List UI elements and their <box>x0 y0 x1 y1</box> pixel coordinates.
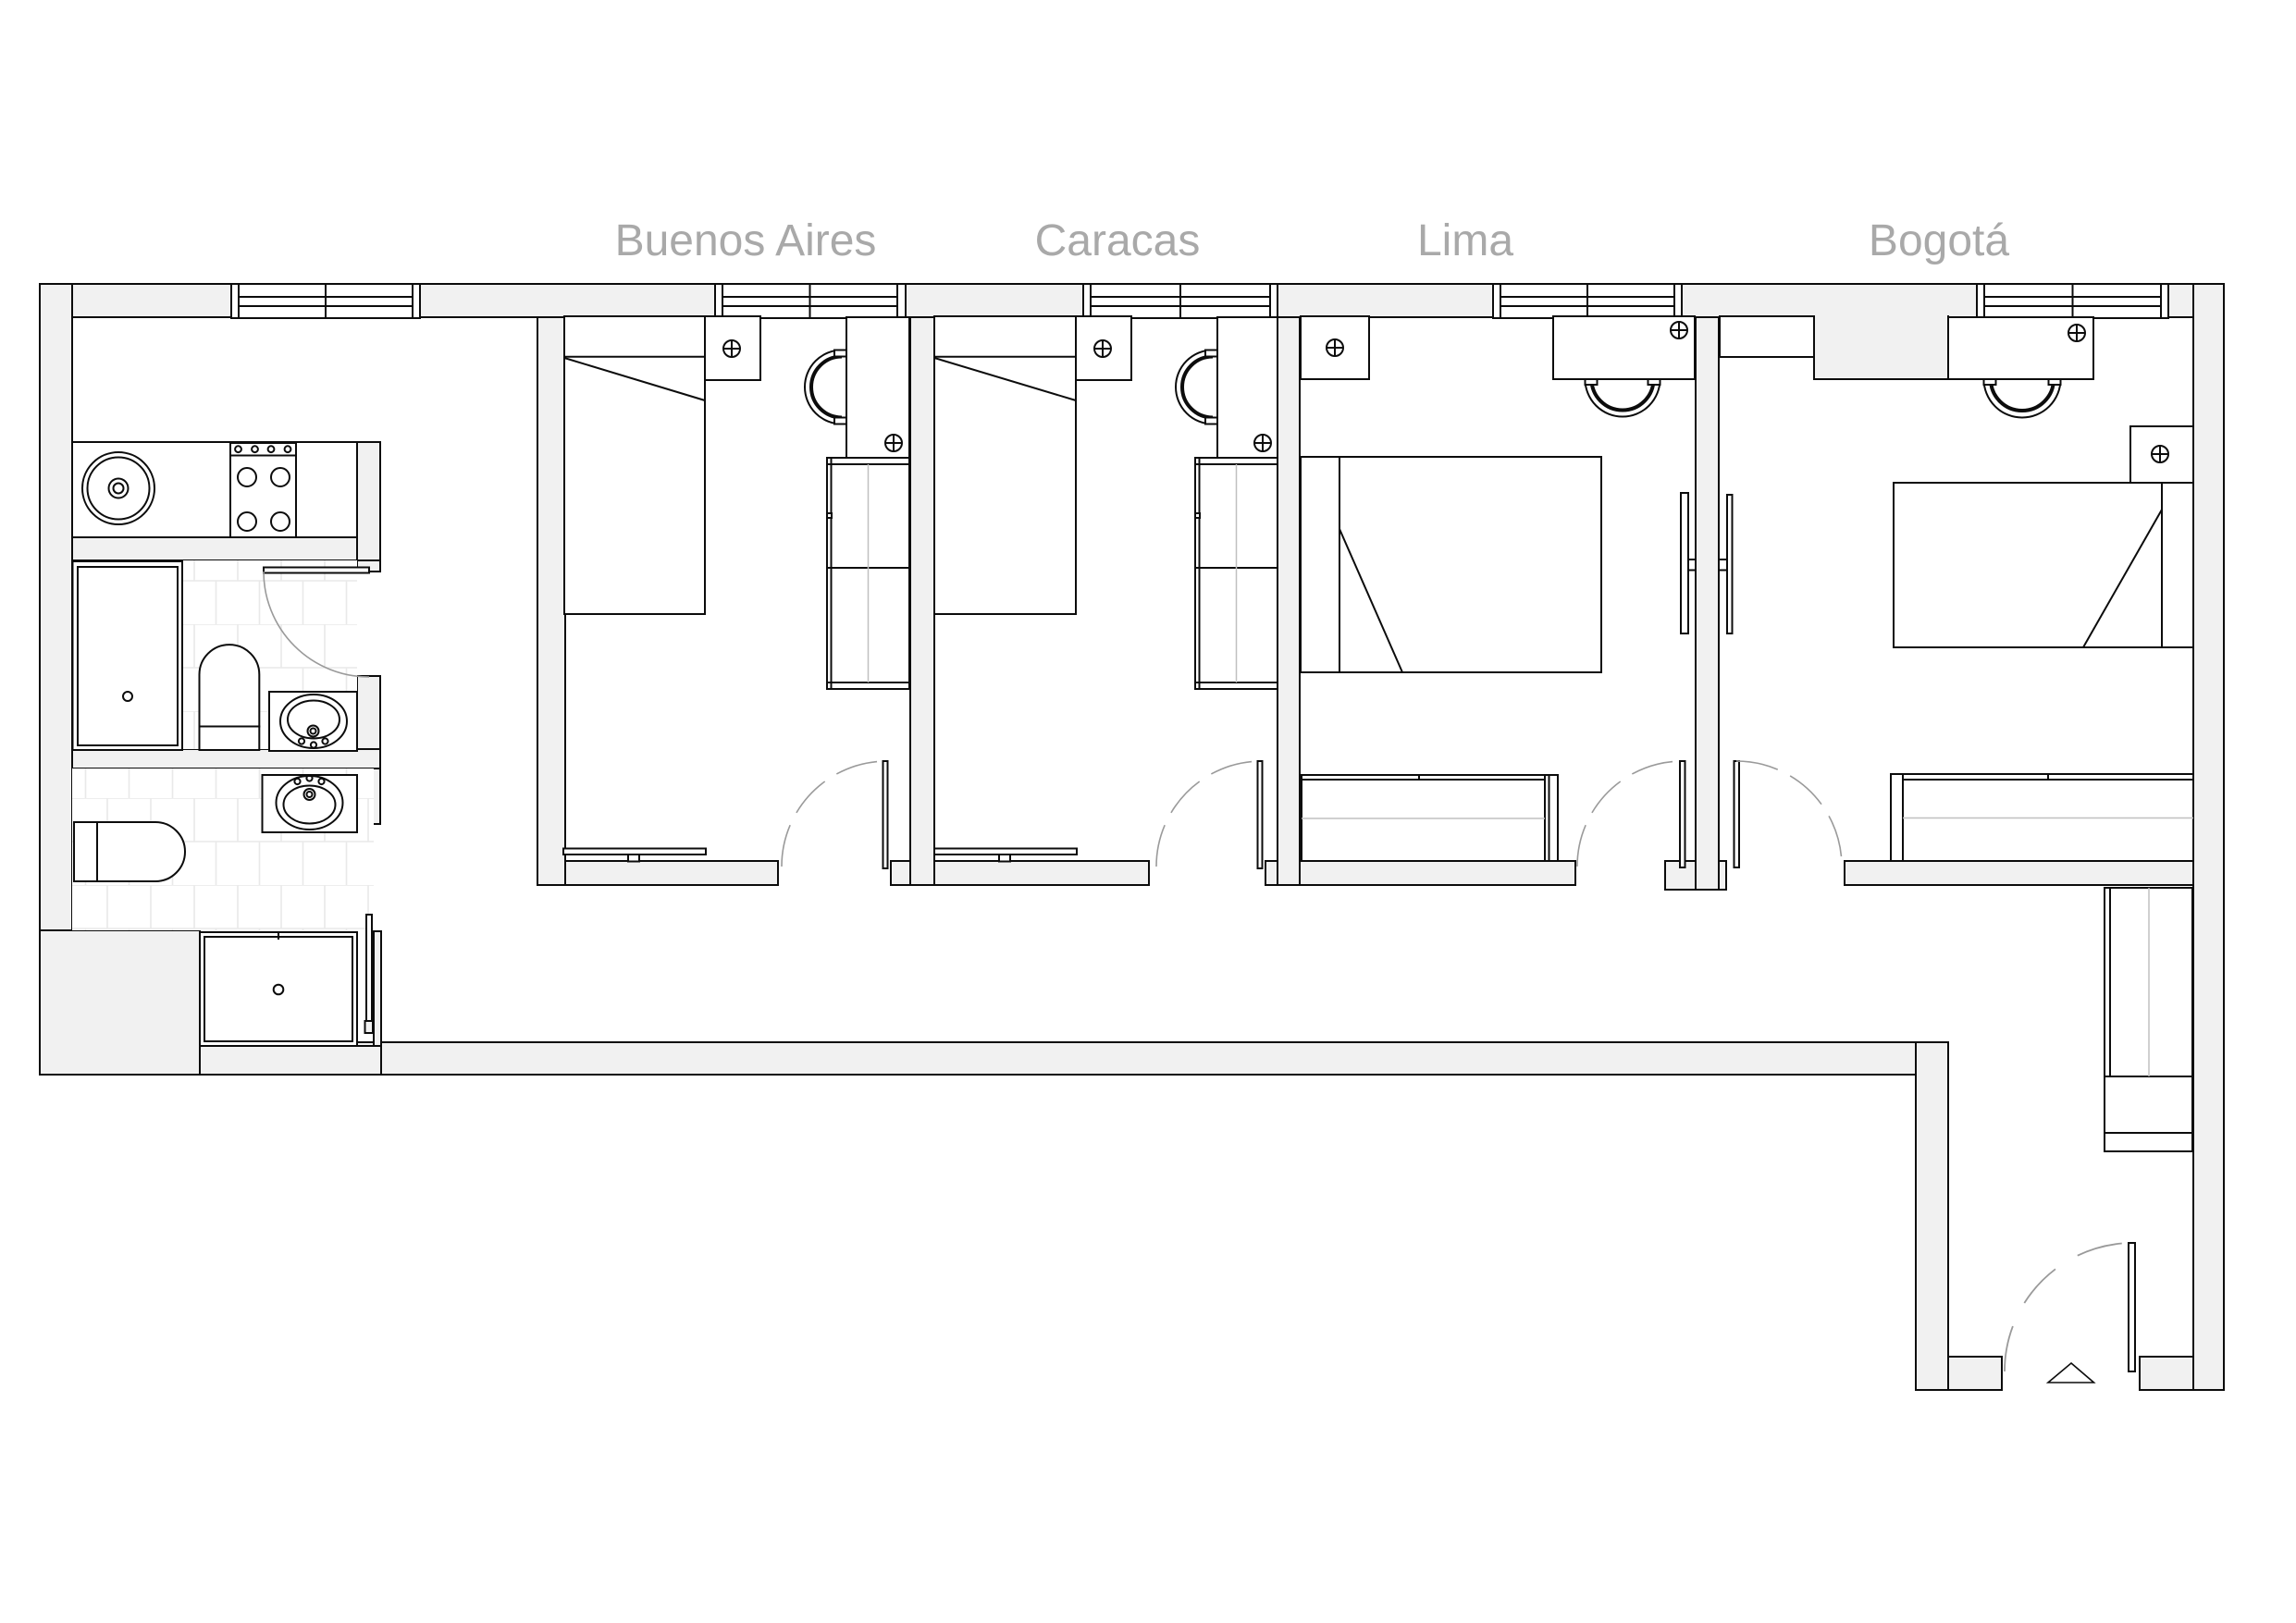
svg-text:Lima: Lima <box>1417 216 1513 265</box>
svg-text:Bogotá: Bogotá <box>1869 216 2009 265</box>
svg-text:Buenos Aires: Buenos Aires <box>615 216 877 265</box>
svg-text:Caracas: Caracas <box>1035 216 1201 265</box>
